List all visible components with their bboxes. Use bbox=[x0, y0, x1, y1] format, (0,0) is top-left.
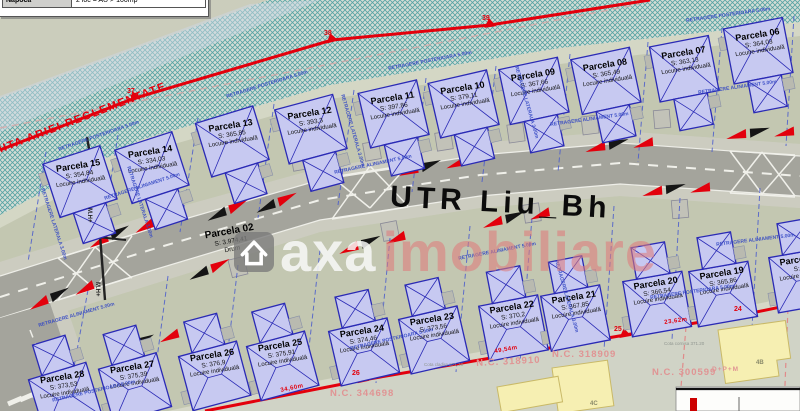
nc-344698: N.C. 344698 bbox=[330, 389, 394, 399]
info-region-cell: Napoca bbox=[3, 0, 72, 7]
building-4b-label: 4B bbox=[756, 360, 764, 366]
boundary-marker-37: 37 bbox=[127, 88, 135, 95]
boundary-marker-26: 26 bbox=[352, 370, 360, 377]
boundary-marker-24: 24 bbox=[734, 306, 742, 313]
cota-label-2: Cota cornisa 371.20 bbox=[664, 342, 704, 347]
zoning-info-table: Napoca 2 loc = AU > 100mp bbox=[0, 0, 209, 17]
boundary-marker-39: 39 bbox=[482, 15, 490, 22]
boundary-marker-25: 25 bbox=[614, 326, 622, 333]
cota-label-1: Cota cladire 371.10 bbox=[424, 363, 463, 368]
street-mh-label-2: M.H+ bbox=[94, 282, 100, 297]
nc-300599: N.C. 300599 bbox=[652, 368, 716, 378]
site-plan: Parcela 15S: 354,84Locuire individuală P… bbox=[0, 0, 800, 411]
legend-box bbox=[676, 387, 800, 411]
nc-318909: N.C. 318909 bbox=[552, 350, 616, 360]
info-rule-cell: 2 loc = AU > 100mp bbox=[72, 0, 205, 7]
building-4c-label: 4C bbox=[590, 401, 598, 407]
dpm-label: D+P+M bbox=[712, 367, 739, 374]
boundary-marker-38: 38 bbox=[324, 30, 332, 37]
street-mh-label-1: M.H+ bbox=[86, 208, 92, 223]
